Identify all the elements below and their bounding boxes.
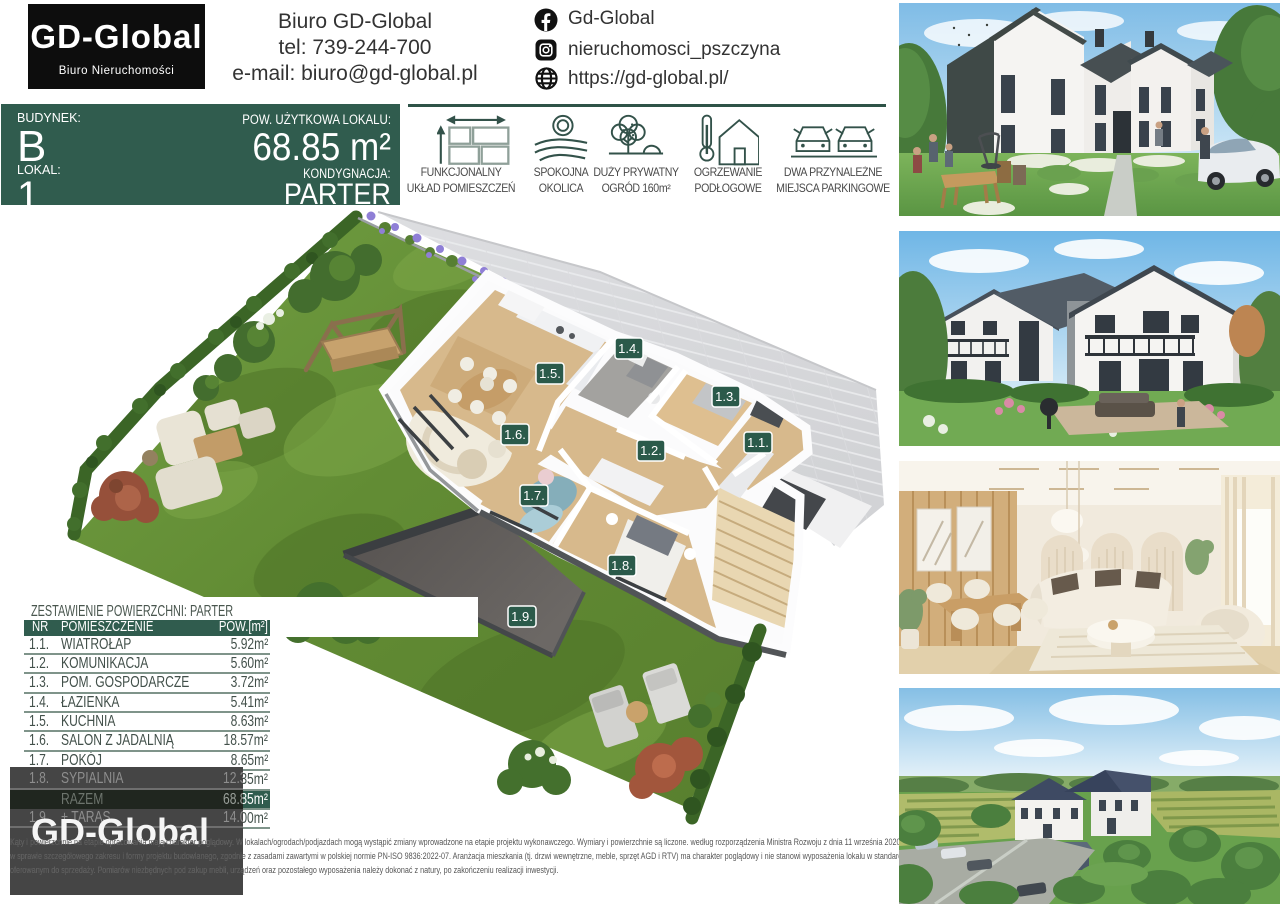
svg-text:1.2.: 1.2. [640,443,662,458]
svg-text:1.4.: 1.4. [618,341,640,356]
svg-text:1.1.: 1.1. [747,435,769,450]
svg-text:1.5.: 1.5. [539,366,561,381]
svg-text:1.6.: 1.6. [504,427,526,442]
svg-text:1.7.: 1.7. [523,488,545,503]
svg-text:1.8.: 1.8. [611,558,633,573]
svg-text:1.9.: 1.9. [511,609,533,624]
svg-text:1.3.: 1.3. [715,389,737,404]
